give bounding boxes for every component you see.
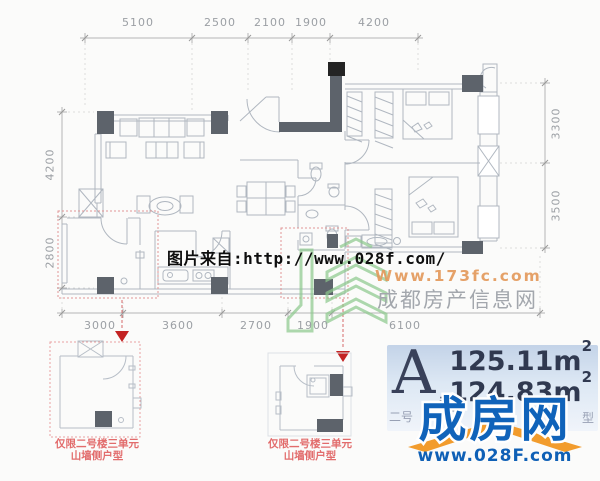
red-arrow-left — [115, 331, 129, 342]
inset2-drawing — [268, 353, 352, 436]
brand-name-text: 成房网 — [418, 392, 571, 448]
watermark-site-name: 成都房产信息网 — [377, 284, 538, 314]
dim-bottom-2: 3600 — [153, 319, 203, 332]
dim-bottom-1: 3000 — [75, 319, 125, 332]
dim-left-2: 2800 — [44, 228, 57, 278]
watermark-source-url: 图片来自:http://www.028f.com/ — [167, 245, 446, 269]
inset2-caption-line2: 山墙侧户型 — [255, 451, 365, 463]
dim-bottom-4: 1900 — [288, 319, 338, 332]
inset2-caption: 仅限二号楼三单元 山墙侧户型 — [255, 439, 365, 462]
inset1-caption: 仅限二号楼三单元 山墙侧户型 — [42, 439, 152, 462]
inset1-caption-line1: 仅限二号楼三单元 — [42, 439, 152, 451]
black-wall-stub — [328, 62, 345, 76]
dim-top-5: 4200 — [349, 16, 399, 29]
dim-bottom-5: 6100 — [380, 319, 430, 332]
dim-top-1: 5100 — [113, 16, 163, 29]
dim-top-4: 1900 — [286, 16, 336, 29]
chengfangwang-logo: 成房网 www.028F.com — [400, 388, 590, 470]
dim-right-2: 3500 — [550, 181, 563, 231]
watermark-173fc-url: Www.173fc.com — [375, 267, 542, 285]
area-building: 125.11m2 — [449, 348, 592, 375]
inset1-drawing — [50, 341, 141, 437]
inset2-caption-line1: 仅限二号楼三单元 — [255, 439, 365, 451]
floorplan-page: 5100 2500 2100 1900 4200 4200 2800 3300 … — [0, 0, 600, 481]
dim-left-1: 4200 — [44, 140, 57, 190]
dim-top-2: 2500 — [195, 16, 245, 29]
dim-bottom-3: 2700 — [231, 319, 281, 332]
dim-right-1: 3300 — [550, 99, 563, 149]
inset1-caption-line2: 山墙侧户型 — [42, 451, 152, 463]
brand-url: www.028F.com — [400, 446, 590, 466]
